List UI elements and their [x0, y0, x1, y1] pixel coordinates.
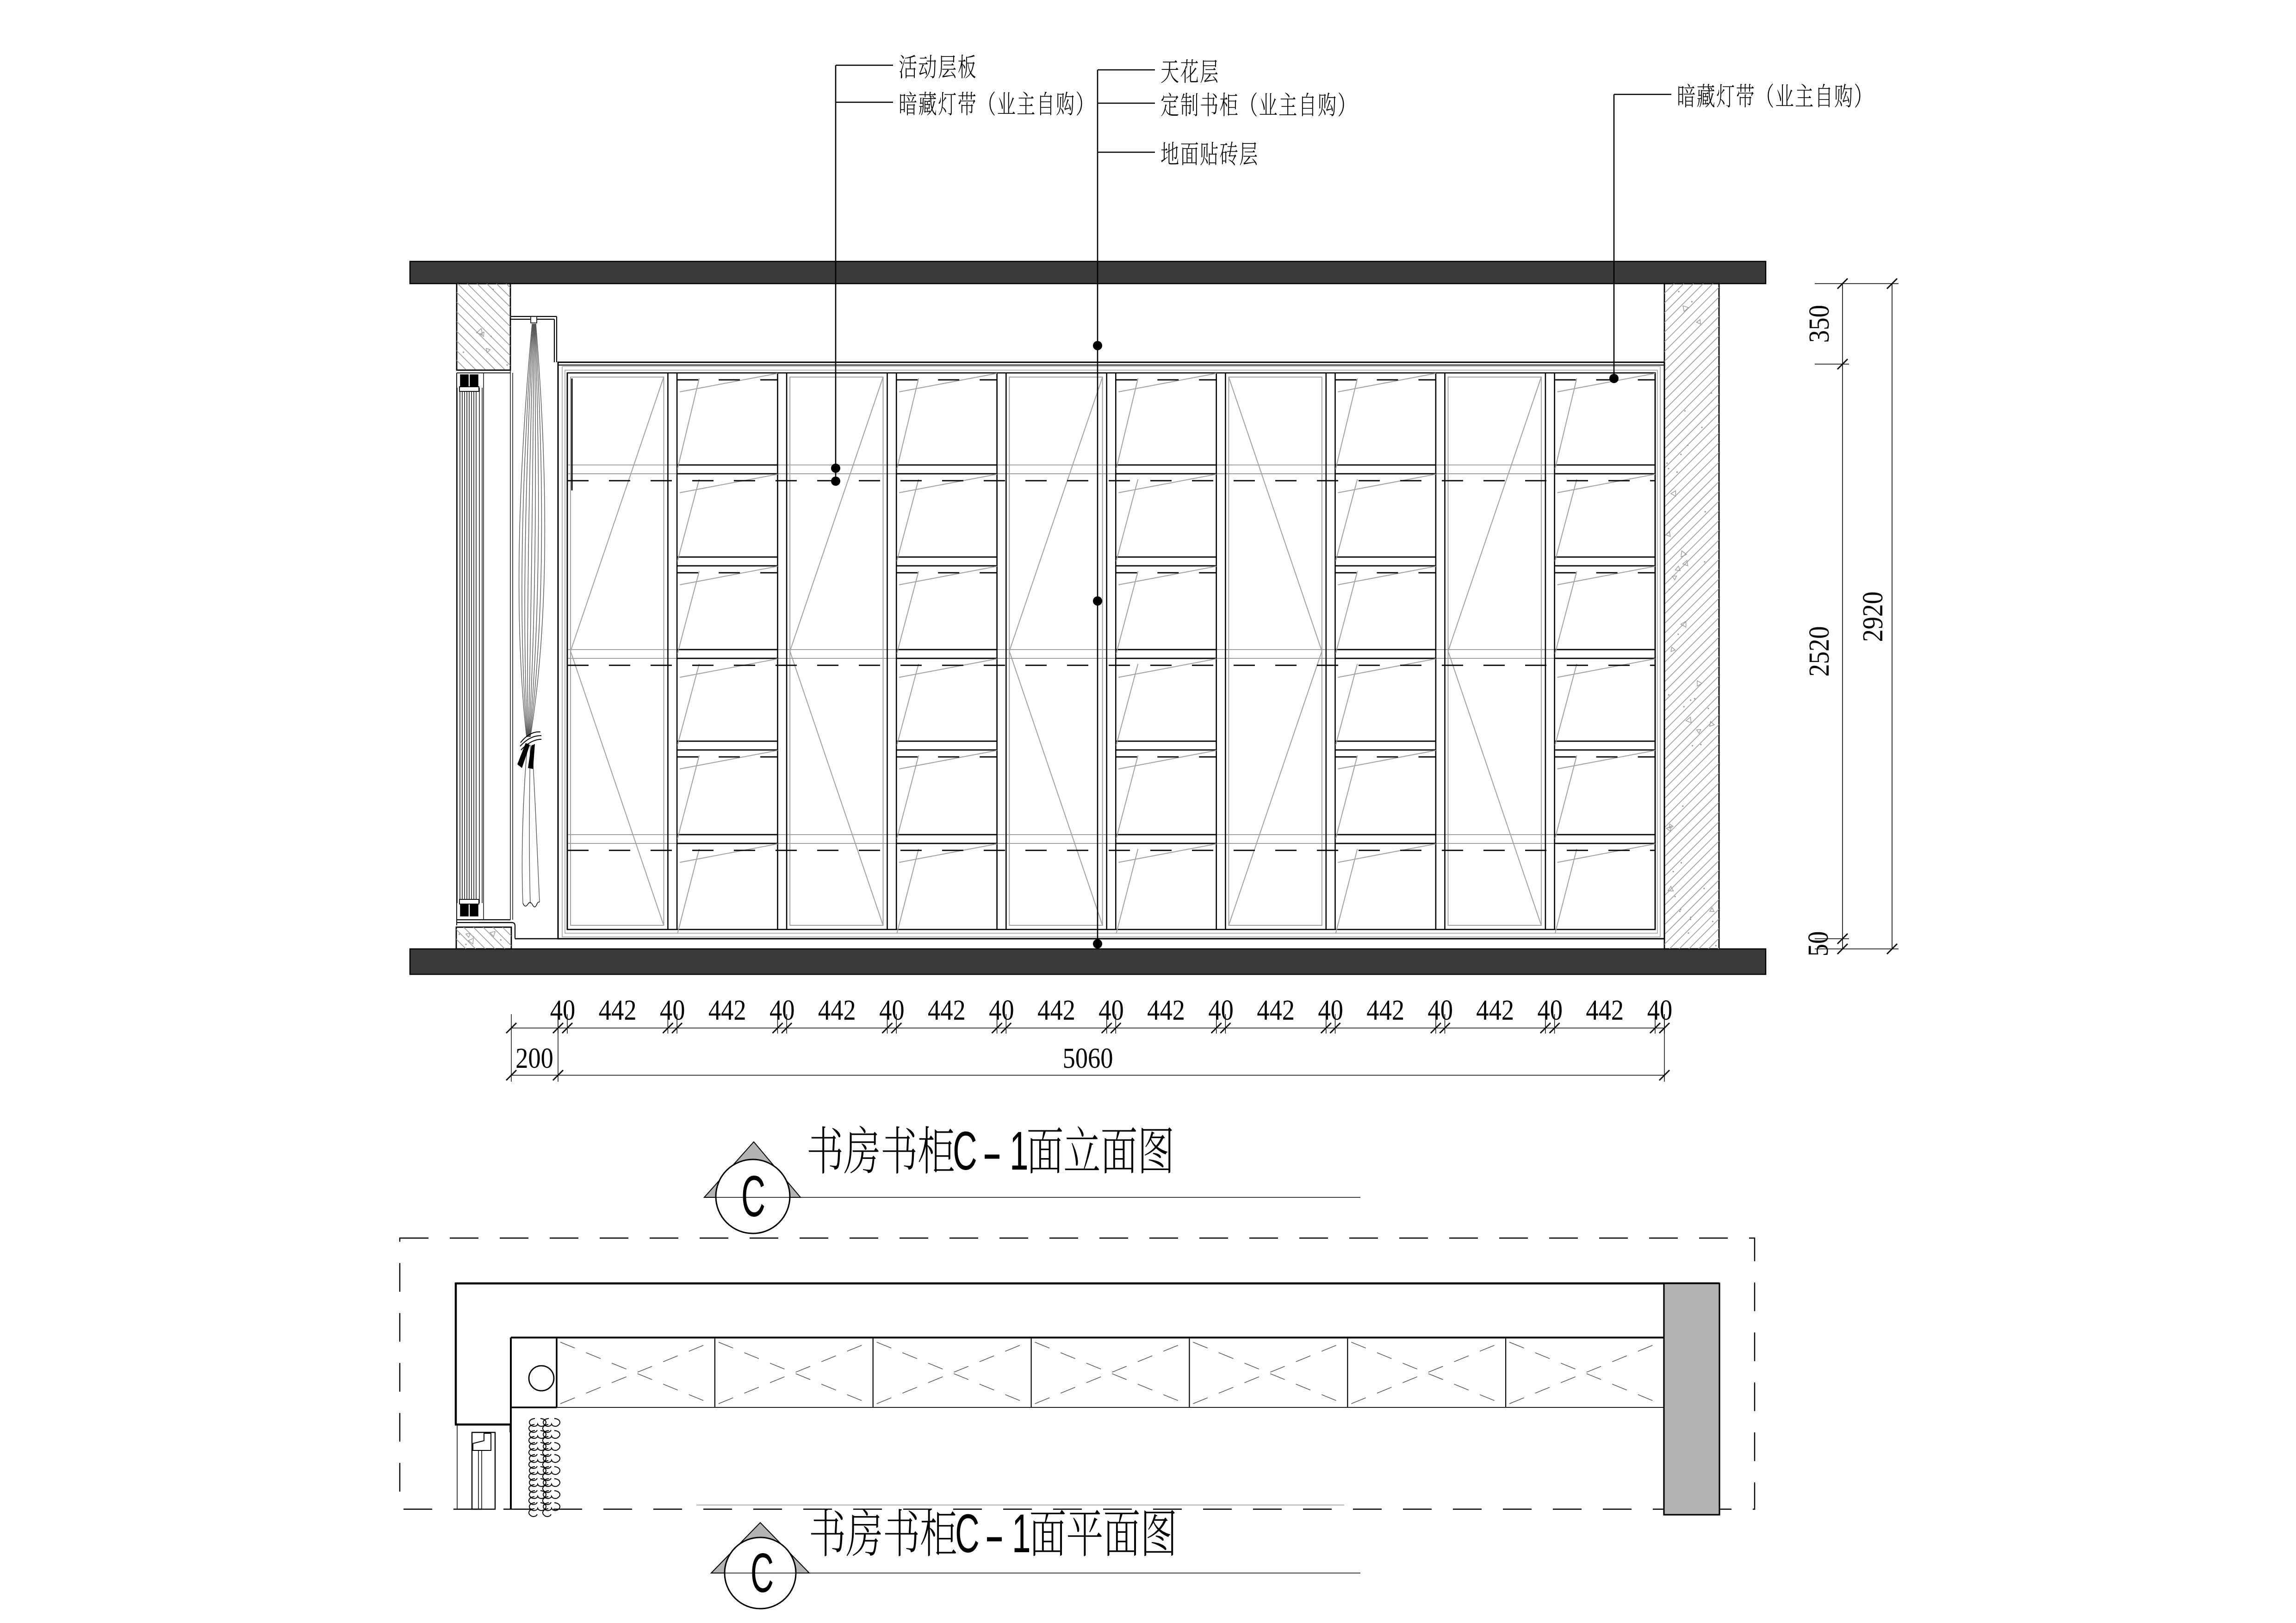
svg-text:40: 40 — [660, 994, 685, 1026]
svg-text:442: 442 — [1366, 994, 1404, 1026]
svg-text:442: 442 — [928, 994, 966, 1026]
svg-text:442: 442 — [1257, 994, 1295, 1026]
svg-text:442: 442 — [1147, 994, 1185, 1026]
svg-text:200: 200 — [515, 1042, 553, 1074]
svg-text:442: 442 — [708, 994, 746, 1026]
svg-text:1: 1 — [1012, 1503, 1031, 1564]
svg-text:40: 40 — [769, 994, 795, 1026]
svg-text:442: 442 — [1586, 994, 1624, 1026]
svg-text:40: 40 — [1647, 994, 1673, 1026]
svg-text:2920: 2920 — [1857, 591, 1889, 642]
svg-text:40: 40 — [1318, 994, 1343, 1026]
svg-text:40: 40 — [989, 994, 1014, 1026]
svg-text:442: 442 — [1476, 994, 1514, 1026]
svg-text:350: 350 — [1803, 305, 1835, 343]
svg-text:5060: 5060 — [1062, 1042, 1113, 1074]
svg-text:40: 40 — [1098, 994, 1124, 1026]
svg-text:C: C — [953, 1120, 977, 1181]
svg-text:40: 40 — [879, 994, 905, 1026]
svg-text:442: 442 — [1037, 994, 1075, 1026]
svg-text:40: 40 — [550, 994, 576, 1026]
svg-text:40: 40 — [1427, 994, 1453, 1026]
svg-text:1: 1 — [1010, 1120, 1029, 1181]
svg-text:40: 40 — [1538, 994, 1563, 1026]
svg-text:40: 40 — [1208, 994, 1234, 1026]
svg-text:C: C — [955, 1503, 980, 1564]
svg-text:C: C — [751, 1542, 774, 1604]
svg-text:2520: 2520 — [1803, 626, 1835, 676]
svg-text:442: 442 — [818, 994, 856, 1026]
svg-text:50: 50 — [1802, 931, 1834, 957]
svg-text:442: 442 — [599, 994, 637, 1026]
svg-text:C: C — [741, 1164, 765, 1228]
